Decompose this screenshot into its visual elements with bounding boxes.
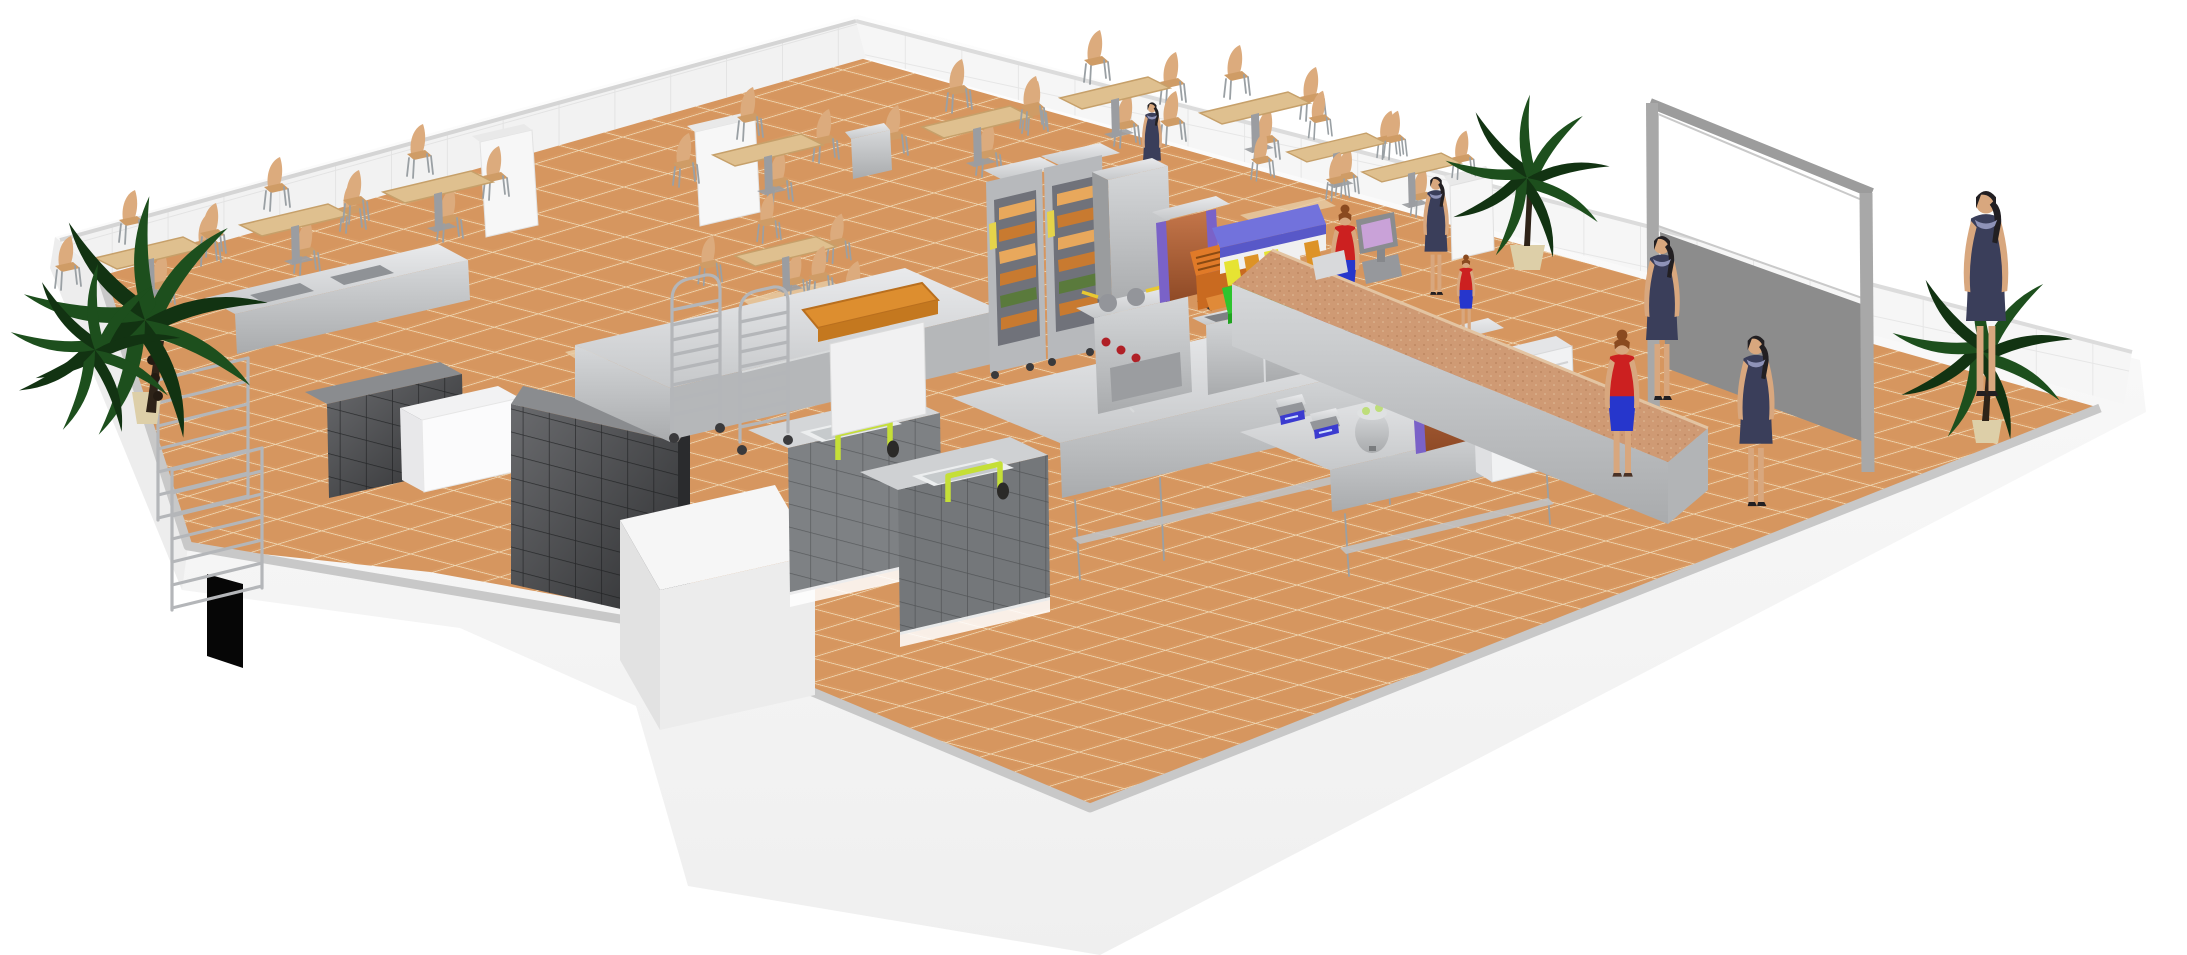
floorplan-render: 3D isometric cutaway rendering of a self… <box>0 0 2187 955</box>
menu-board-post <box>1866 193 1868 472</box>
floorplan-stage: 3D isometric cutaway rendering of a self… <box>0 0 2187 955</box>
white-walk-in-store <box>620 485 815 730</box>
rice-cooker <box>1355 404 1389 453</box>
wall-doorway <box>207 574 243 668</box>
